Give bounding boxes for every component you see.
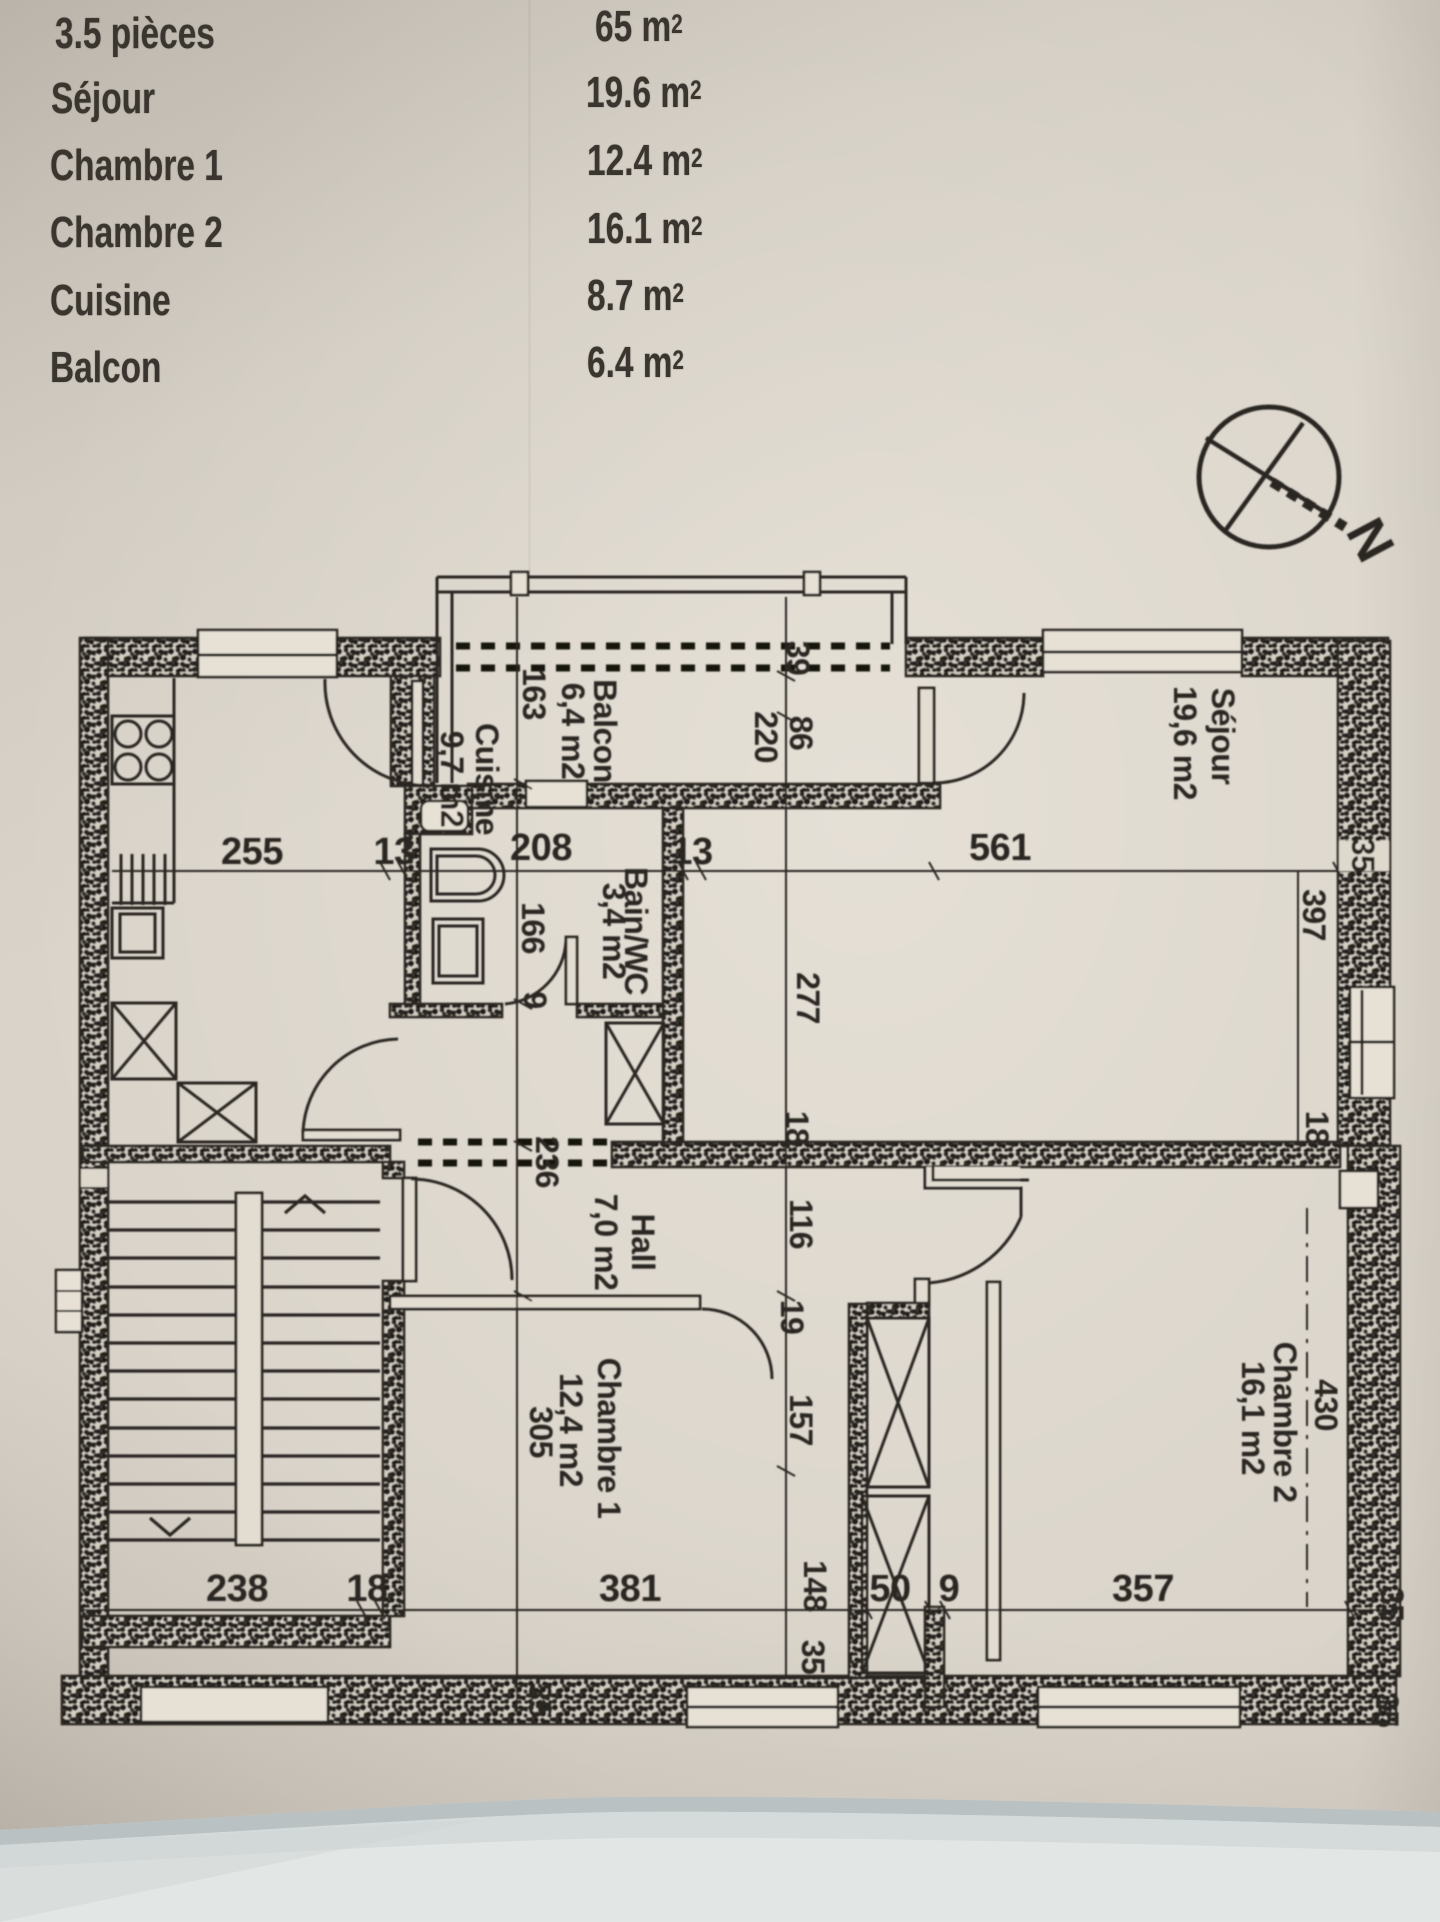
svg-text:35: 35 (1345, 838, 1381, 873)
svg-text:35: 35 (522, 1683, 558, 1718)
svg-text:19,6 m2: 19,6 m2 (1167, 686, 1203, 800)
svg-text:166: 166 (515, 902, 551, 954)
svg-text:Chambre 2: Chambre 2 (1267, 1342, 1303, 1503)
svg-text:Hall: Hall (625, 1214, 661, 1271)
svg-text:236: 236 (529, 1136, 565, 1188)
svg-text:Séjour: Séjour (1205, 688, 1241, 785)
svg-text:9: 9 (517, 991, 553, 1008)
svg-text:18: 18 (346, 1568, 387, 1610)
svg-text:116: 116 (783, 1199, 819, 1249)
svg-text:35: 35 (795, 1640, 831, 1675)
svg-text:430: 430 (1308, 1379, 1344, 1431)
svg-text:19: 19 (774, 1300, 810, 1335)
svg-text:7,0 m2: 7,0 m2 (588, 1194, 624, 1291)
svg-text:277: 277 (790, 972, 826, 1024)
svg-text:381: 381 (599, 1568, 661, 1610)
svg-text:208: 208 (510, 827, 572, 869)
svg-text:3,4 m2: 3,4 m2 (596, 883, 632, 980)
svg-text:13: 13 (373, 831, 414, 873)
svg-text:148: 148 (797, 1560, 833, 1612)
svg-text:238: 238 (206, 1568, 268, 1610)
svg-text:157: 157 (783, 1394, 819, 1446)
svg-text:50: 50 (869, 1568, 910, 1610)
svg-text:16,1 m2: 16,1 m2 (1235, 1361, 1271, 1475)
svg-text:6,4 m2: 6,4 m2 (555, 683, 591, 780)
svg-text:Balcon: Balcon (587, 679, 623, 783)
svg-text:9,7 m2: 9,7 m2 (434, 731, 470, 828)
svg-text:N: N (1334, 509, 1405, 572)
svg-text:12,4 m2: 12,4 m2 (553, 1373, 589, 1487)
svg-text:357: 357 (1112, 1568, 1174, 1610)
svg-text:86: 86 (783, 716, 819, 751)
svg-text:255: 255 (221, 831, 283, 873)
svg-text:163: 163 (516, 668, 552, 720)
svg-text:9: 9 (939, 1568, 960, 1610)
svg-text:35: 35 (1374, 1587, 1410, 1622)
svg-text:18: 18 (1299, 1111, 1335, 1146)
svg-text:39: 39 (780, 641, 816, 676)
svg-text:Cuisine: Cuisine (469, 723, 505, 835)
svg-text:18: 18 (779, 1111, 815, 1146)
svg-text:397: 397 (1296, 889, 1332, 941)
svg-text:35: 35 (1369, 1693, 1405, 1728)
svg-text:220: 220 (748, 711, 784, 763)
svg-text:Chambre 1: Chambre 1 (591, 1358, 627, 1519)
svg-text:13: 13 (671, 831, 712, 873)
svg-text:561: 561 (969, 827, 1031, 869)
